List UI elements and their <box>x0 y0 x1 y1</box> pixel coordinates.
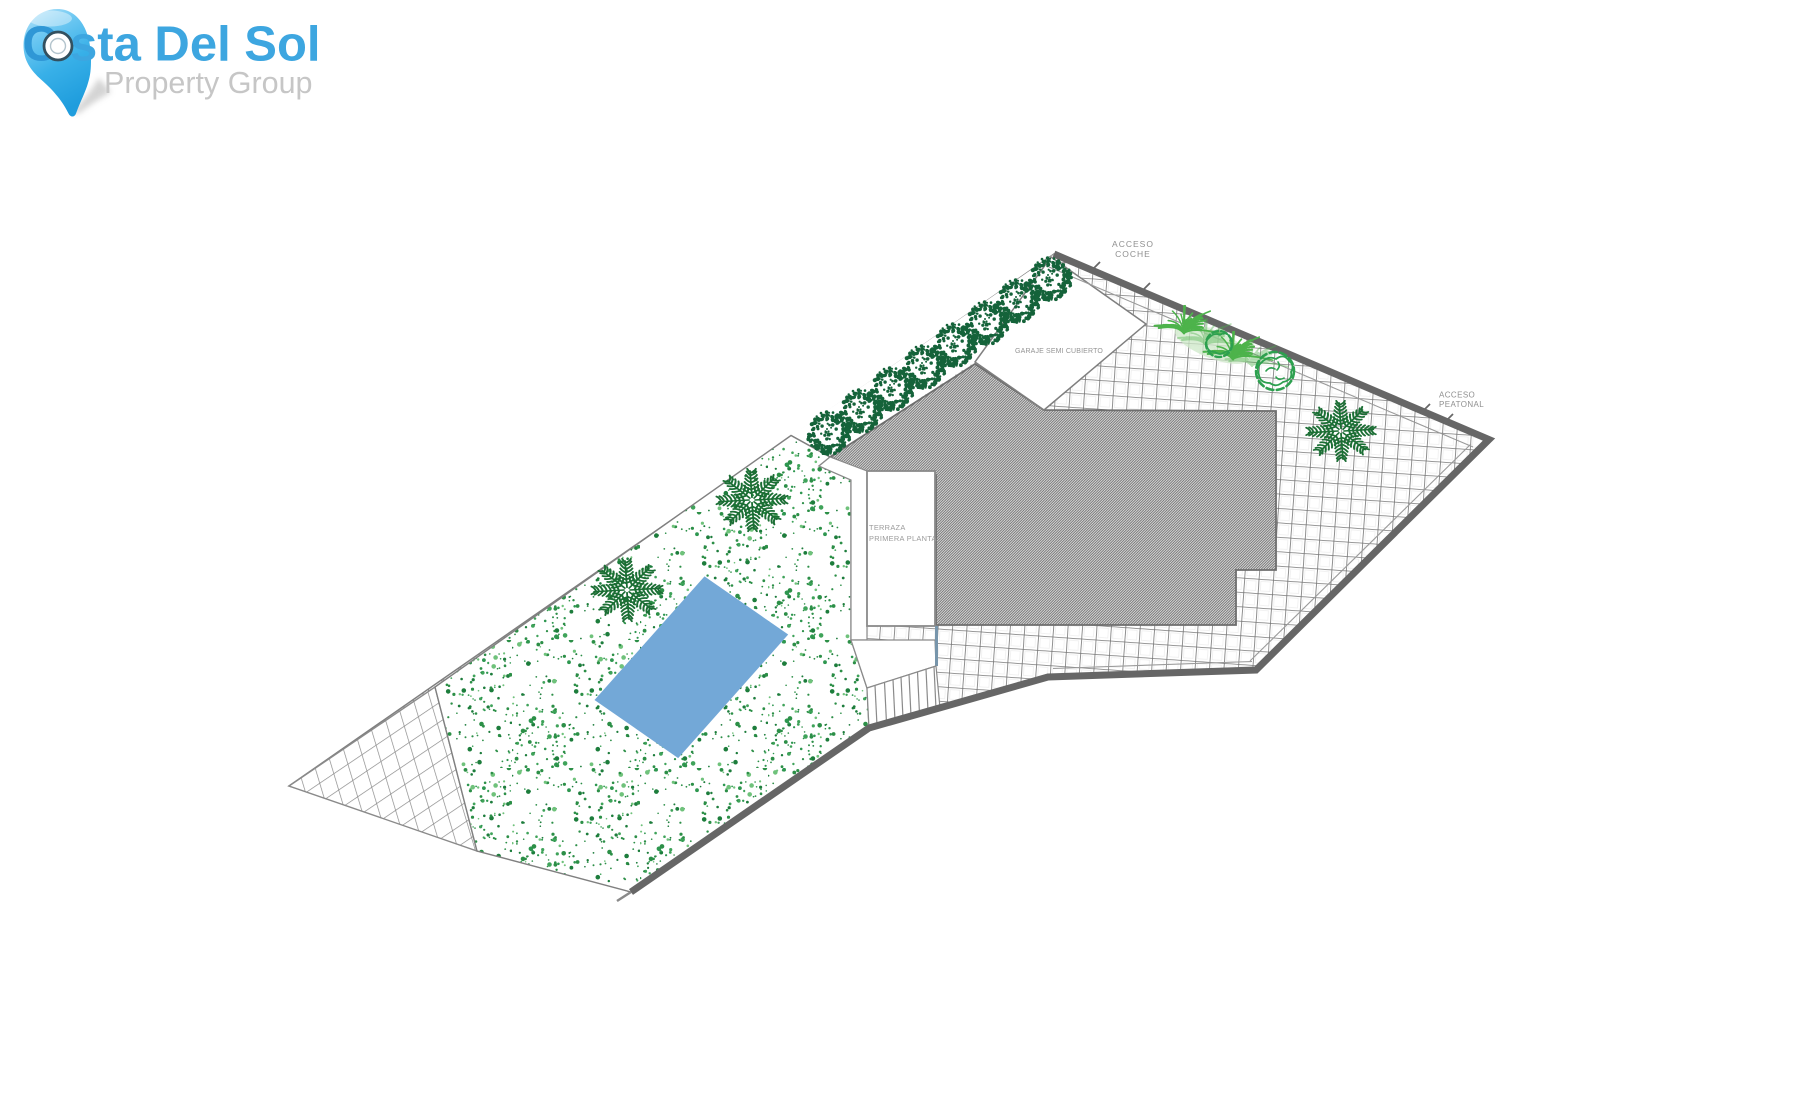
svg-text:TERRAZA: TERRAZA <box>869 523 906 532</box>
svg-text:GARAJE SEMI CUBIERTO: GARAJE SEMI CUBIERTO <box>1015 348 1103 355</box>
svg-text:ACCESO: ACCESO <box>1439 391 1475 400</box>
svg-text:PEATONAL: PEATONAL <box>1439 400 1484 409</box>
svg-text:COCHE: COCHE <box>1115 249 1151 259</box>
svg-text:ACCESO: ACCESO <box>1112 239 1154 249</box>
svg-text:Property Group: Property Group <box>104 66 313 100</box>
svg-text:sta Del Sol: sta Del Sol <box>70 18 321 72</box>
svg-text:PRIMERA PLANTA: PRIMERA PLANTA <box>869 534 937 543</box>
